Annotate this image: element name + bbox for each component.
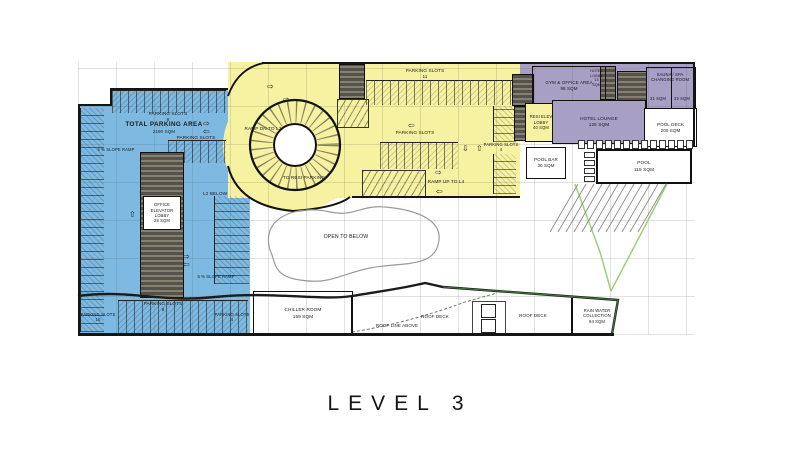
parking-slots-label: PARKING SLOTS 4 [214, 312, 250, 323]
l2-below-label: L2 BELOW [200, 191, 230, 197]
wall-top [262, 62, 695, 64]
wall-yellow-bottom [352, 196, 520, 198]
sauna-area-left: 31 SQM [648, 96, 668, 101]
plan-title: LEVEL 3 [0, 392, 800, 416]
parking-count: 8 [140, 307, 186, 313]
wall-left [78, 104, 80, 335]
direction-arrow-icon: ⇧ [129, 211, 136, 219]
open-to-below-label: OPEN TO BELOW [318, 234, 374, 241]
direction-arrow-icon: ⇩ [462, 145, 469, 153]
to-resi-label: TO RESI PARKING [281, 175, 327, 181]
slope-ramp-label: 5 % SLOPE RAMP [96, 147, 136, 152]
parking-count: 4 [480, 147, 522, 152]
pool-side-seats [584, 152, 595, 182]
parking-slots-label: PARKING SLOTS [394, 130, 436, 136]
pool-lounge-chairs [578, 140, 696, 149]
parking-slots-label: PARKING SLOTS 11 [400, 68, 450, 80]
parking-count: 11 [400, 74, 450, 80]
ramp-up-label: RAMP UP TO L4 [425, 179, 467, 185]
sauna-label: SAUNA / SPA CHANGING ROOM [645, 72, 695, 83]
ramp-dn-label: RAMP DN TO L2 [243, 126, 283, 132]
direction-arrow-icon: ⇨ [435, 169, 442, 177]
floor-plan-level-3: OFFICE ELEVATOR LOBBY 28 SQM GYM & OFFIC… [0, 0, 800, 450]
roof-line-above-label: ROOF LINE ABOVE [372, 323, 422, 329]
direction-arrow-icon: ⇦ [436, 188, 443, 196]
direction-arrow-icon: ⇨ [267, 83, 274, 91]
wall-blue-top [110, 88, 228, 90]
parking-count: 4 [214, 317, 250, 322]
direction-arrow-icon: ⇦ [203, 128, 210, 136]
wall-bottom [78, 333, 614, 336]
direction-arrow-icon: ⇦ [183, 261, 190, 269]
total-parking-label: TOTAL PARKING AREA 2190 SQM [118, 121, 210, 135]
direction-arrow-icon: ⇦ [408, 122, 415, 130]
parking-slots-label: PARKING SLOTS 8 [140, 301, 186, 313]
parking-slots-label: PARKING SLOTS [174, 135, 218, 141]
slope-ramp-label: 5 % SLOPE RAMP [196, 274, 236, 279]
direction-arrow-icon: ⇨ [283, 96, 290, 104]
roof-deck-label: ROOF DECK [413, 314, 457, 320]
parking-slots-label: PARKING SLOTS 4 [480, 142, 522, 153]
sauna-area-right: 32 SQM [672, 96, 692, 101]
roof-deck-label: ROOF DECK [511, 313, 555, 319]
wall-blue-topleft [78, 104, 112, 106]
parking-slots-label: PARKING SLOTS 10 [80, 312, 116, 323]
parking-count: 10 [80, 317, 116, 322]
skylight-box [472, 301, 506, 335]
direction-arrow-icon: ⇧ [476, 145, 483, 153]
